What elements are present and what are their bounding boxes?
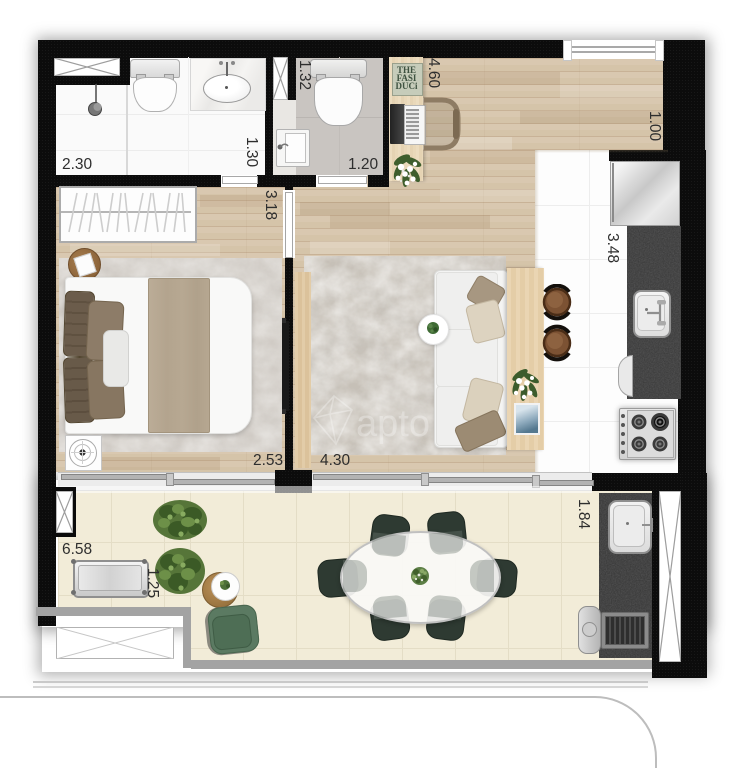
svg-text:apto: apto xyxy=(356,403,430,445)
